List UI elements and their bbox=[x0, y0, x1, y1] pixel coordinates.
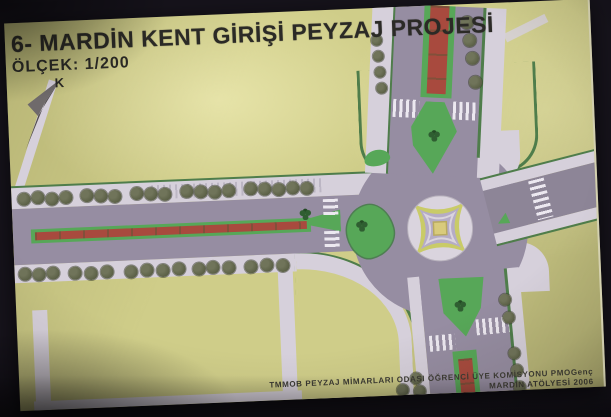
poster: 6- MARDİN KENT GİRİŞİ PEYZAJ PROJESİ ÖLÇ… bbox=[4, 0, 606, 411]
shrub-symbol bbox=[355, 219, 369, 232]
north-label: K bbox=[54, 75, 64, 90]
photo-of-poster: 6- MARDİN KENT GİRİŞİ PEYZAJ PROJESİ ÖLÇ… bbox=[0, 0, 611, 417]
north-indicator: K bbox=[16, 75, 65, 160]
shrub-symbol bbox=[427, 129, 441, 142]
shrub-symbol bbox=[453, 299, 467, 312]
shrub-symbol bbox=[298, 208, 312, 221]
